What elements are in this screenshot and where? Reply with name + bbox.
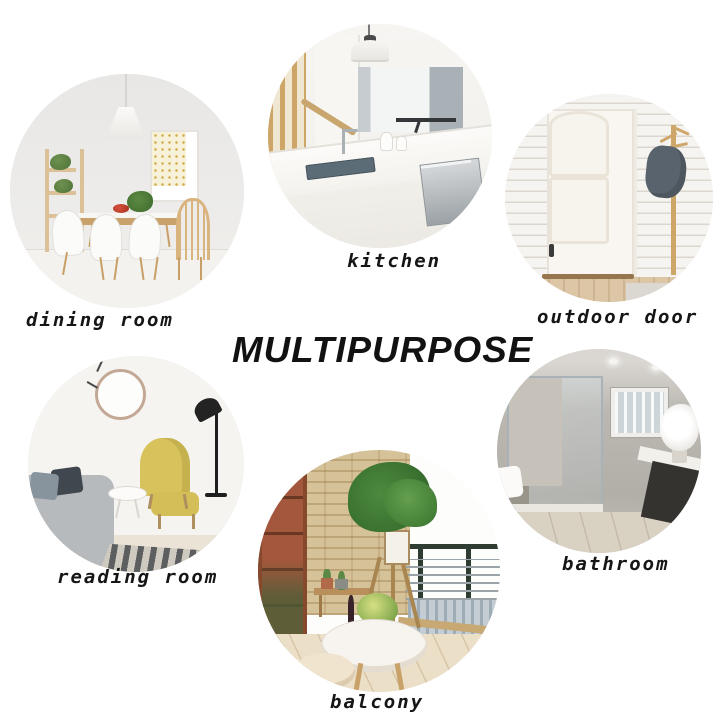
back-table <box>396 118 456 122</box>
faucet <box>342 129 345 154</box>
chair-leg <box>200 257 202 280</box>
white-flowers <box>660 404 699 451</box>
outdoor-door-photo <box>505 94 713 302</box>
door-handle <box>549 244 554 257</box>
railing-cables <box>406 559 500 600</box>
cream-stool <box>294 653 355 689</box>
wood-framed-window <box>258 455 307 647</box>
floor-lamp-base <box>205 493 227 497</box>
multipurpose-collage: MULTIPURPOSE dining room kitchen outdoor… <box>0 0 720 720</box>
yellow-armchair <box>140 438 190 496</box>
terracotta-pot <box>321 578 333 589</box>
chair-leg <box>178 257 180 280</box>
floor-tile <box>626 283 713 302</box>
gold-speckle-art <box>152 132 186 186</box>
main-title: MULTIPURPOSE <box>232 329 533 371</box>
bathroom-photo <box>497 349 701 553</box>
dining-room-photo <box>10 74 244 308</box>
label-kitchen: kitchen <box>347 250 441 272</box>
bench-leg <box>319 595 322 617</box>
counter-jar <box>380 132 393 152</box>
label-dining-room: dining room <box>26 309 174 331</box>
balcony-photo <box>258 450 500 692</box>
wooden-chair <box>176 198 210 260</box>
white-planter <box>384 530 410 565</box>
label-balcony: balcony <box>330 691 424 713</box>
ottoman-leg <box>192 514 195 529</box>
white-door <box>547 109 634 277</box>
counter-jar <box>396 136 407 151</box>
art-frame <box>150 130 198 202</box>
label-bathroom: bathroom <box>562 553 670 575</box>
dishwasher <box>419 157 486 226</box>
door-panel-top <box>549 111 610 178</box>
reading-room-photo <box>28 356 244 572</box>
tub-edge <box>497 465 523 499</box>
floor-lamp-pole <box>215 412 218 494</box>
wine-bottle <box>348 595 354 624</box>
pendant-lamp <box>351 40 389 62</box>
slate-pillow <box>29 471 60 500</box>
ottoman <box>151 492 199 516</box>
label-outdoor-door: outdoor door <box>537 306 698 328</box>
kitchen-photo <box>268 24 492 248</box>
lamp-cord <box>125 74 127 109</box>
hanging-plant <box>50 154 71 170</box>
faucet-spout <box>342 129 358 132</box>
table-plant <box>127 191 153 212</box>
ottoman-leg <box>158 514 161 529</box>
white-chair <box>90 214 122 260</box>
side-table <box>108 486 147 501</box>
shower-curb <box>507 504 603 512</box>
door-panel-bottom <box>549 177 610 244</box>
white-chair <box>128 214 163 262</box>
doormat <box>542 274 634 279</box>
gray-pot <box>335 579 347 589</box>
label-reading-room: reading room <box>57 566 218 588</box>
